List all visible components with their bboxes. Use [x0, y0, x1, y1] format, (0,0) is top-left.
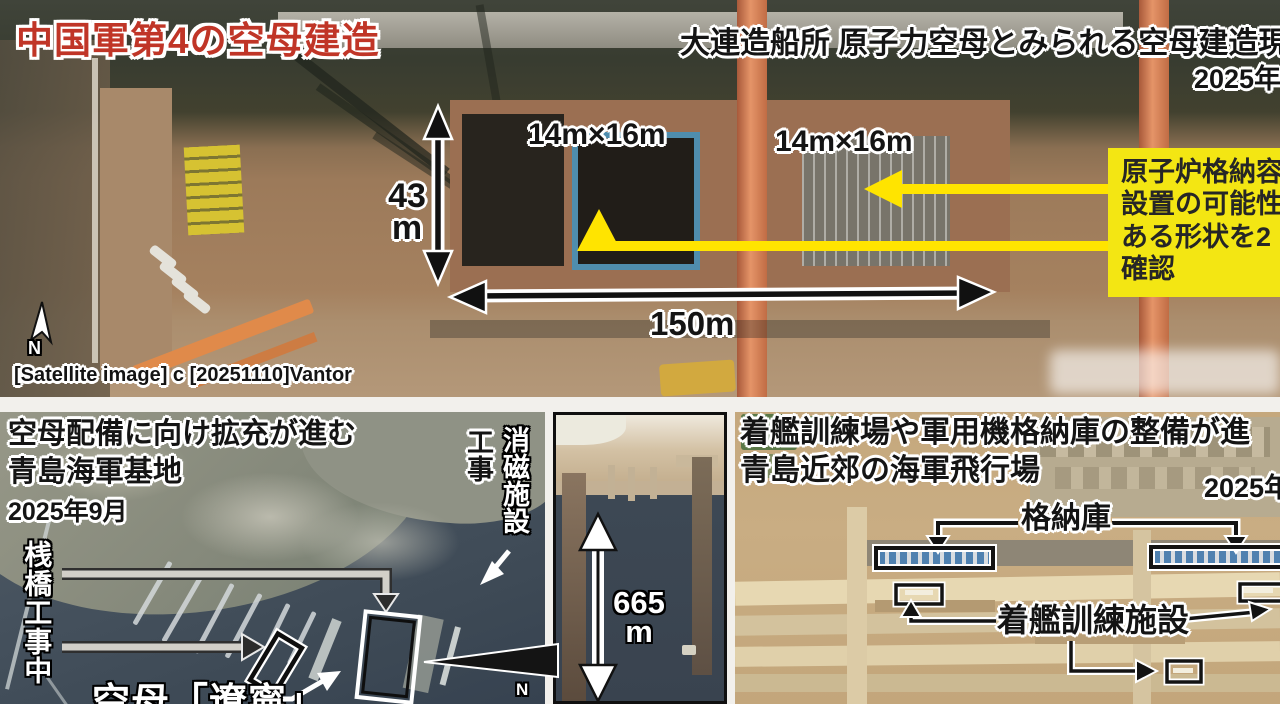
- new-pier-strip: [440, 626, 461, 686]
- bl-north-label: N: [516, 680, 528, 700]
- hangar-label: 格納庫: [1021, 502, 1111, 537]
- opening-left-label: 14m×16m: [528, 118, 666, 153]
- inset-boat: [682, 645, 696, 655]
- inset-right-pier: [692, 457, 712, 675]
- yellow-machine: [659, 359, 736, 396]
- land-texture: [300, 502, 460, 582]
- quay-edge-line: [92, 58, 98, 363]
- training-facility-label: 着艦訓練施設: [997, 602, 1189, 639]
- carrier-liaoning-label: 空母「遼寧」: [92, 682, 326, 704]
- north-label: N: [28, 338, 41, 359]
- construction-label: 工事: [462, 428, 493, 482]
- dock-equipment-row: [430, 320, 1050, 338]
- navy-pier: [287, 611, 317, 665]
- runway-marking: [905, 590, 933, 595]
- top-date: 2025年: [1194, 64, 1280, 95]
- degaussing-label: 消磁施設: [498, 426, 529, 534]
- hangar-row-blue: [878, 551, 990, 565]
- height-43m-label: 43 m: [380, 180, 434, 245]
- opening-right-label: 14m×16m: [775, 125, 913, 160]
- new-pier-area: [403, 614, 444, 693]
- pier-construction-label: 桟橋工事中: [20, 540, 52, 685]
- runway: [735, 572, 1280, 606]
- blurred-watermark: [1050, 350, 1280, 394]
- left-platform: [100, 88, 172, 370]
- callout-line: 原子炉格納容: [1121, 156, 1280, 188]
- infield-block: [875, 600, 995, 612]
- runway-marking: [1243, 588, 1273, 593]
- callout-line: ある形状を2: [1121, 221, 1280, 253]
- br-title-line2: 青島近郊の海軍飛行場: [740, 454, 1040, 489]
- height-unit: m: [392, 209, 422, 247]
- hull-opening-reactor-left: [572, 132, 700, 270]
- taxiway: [847, 507, 867, 704]
- inset-small-pier: [628, 467, 635, 501]
- pier-inset-photo: [553, 412, 727, 704]
- runway-marking: [1173, 668, 1193, 673]
- satellite-credit: [Satellite image] c [20251110]Vantor: [14, 364, 352, 387]
- inset-small-pier: [608, 465, 615, 499]
- runway: [735, 641, 1280, 667]
- callout-line: 確認: [1121, 253, 1280, 285]
- runway: [735, 674, 1280, 692]
- infographic-canvas: 原子炉格納容 設置の可能性 ある形状を2 確認 中国軍第4の空母建造 大連造船所…: [0, 0, 1280, 704]
- br-title-line1: 着艦訓練場や軍用機格納庫の整備が進: [740, 416, 1250, 451]
- length-150m-label: 150m: [650, 305, 734, 343]
- main-title: 中国軍第4の空母建造: [16, 20, 380, 63]
- inset-left-pier: [562, 473, 586, 701]
- length-665m-label: 665 m: [610, 588, 668, 647]
- bl-date: 2025年9月: [8, 498, 128, 527]
- hangar-row-blue: [1153, 550, 1280, 564]
- br-date: 2025年: [1204, 473, 1280, 504]
- inset-small-pier: [650, 467, 657, 499]
- carrier-berth-pier: [308, 618, 341, 681]
- callout-line: 設置の可能性: [1121, 188, 1280, 220]
- yellow-block-stack: [184, 145, 245, 236]
- bl-title-line2: 青島海軍基地: [8, 456, 182, 489]
- navy-pier: [258, 603, 291, 663]
- inset-length-unit: m: [625, 614, 653, 649]
- bl-title-line1: 空母配備に向け拡充が進む: [8, 418, 356, 451]
- subtitle: 大連造船所 原子力空母とみられる空母建造現: [680, 27, 1280, 62]
- reactor-callout-box: 原子炉格納容 設置の可能性 ある形状を2 確認: [1108, 148, 1280, 297]
